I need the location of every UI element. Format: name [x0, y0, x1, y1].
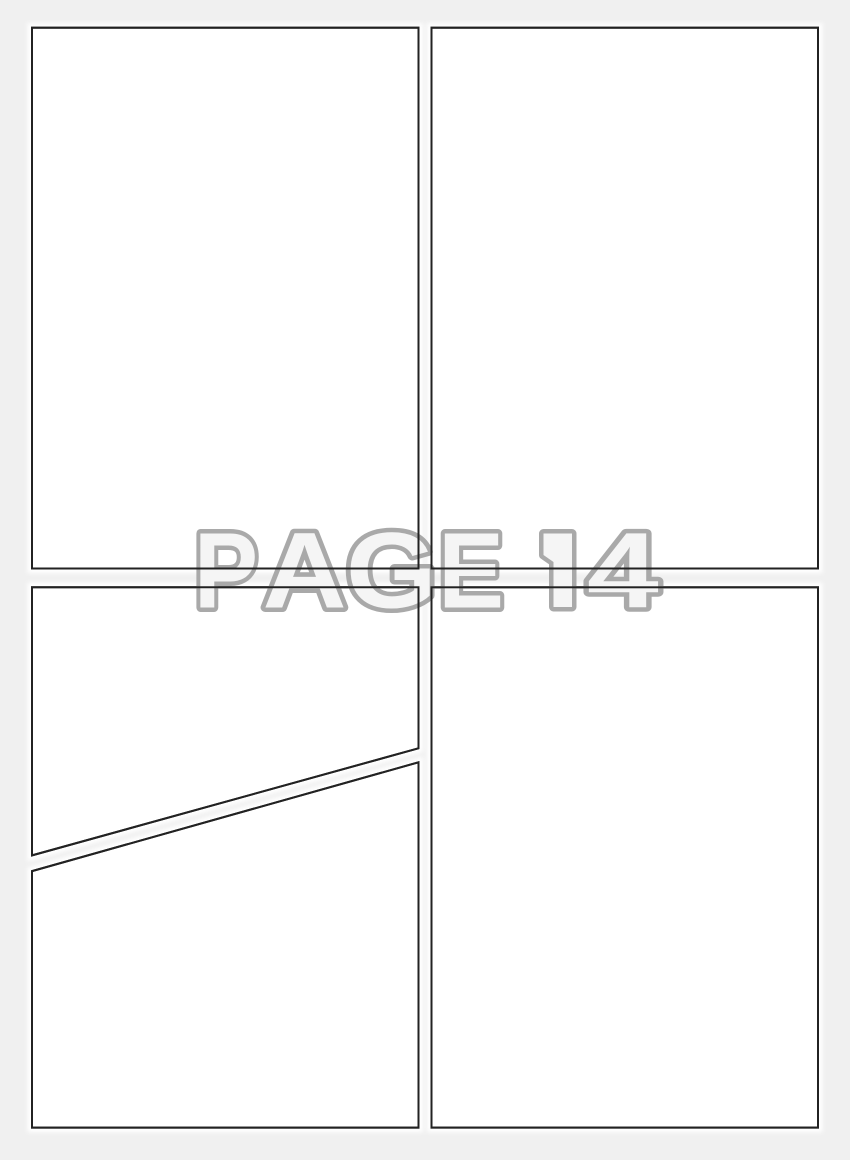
svg-text:E: E — [438, 510, 504, 630]
svg-text:A: A — [263, 510, 347, 630]
svg-text:G: G — [346, 510, 437, 631]
svg-text:P: P — [194, 510, 258, 630]
svg-text:4: 4 — [587, 511, 659, 631]
